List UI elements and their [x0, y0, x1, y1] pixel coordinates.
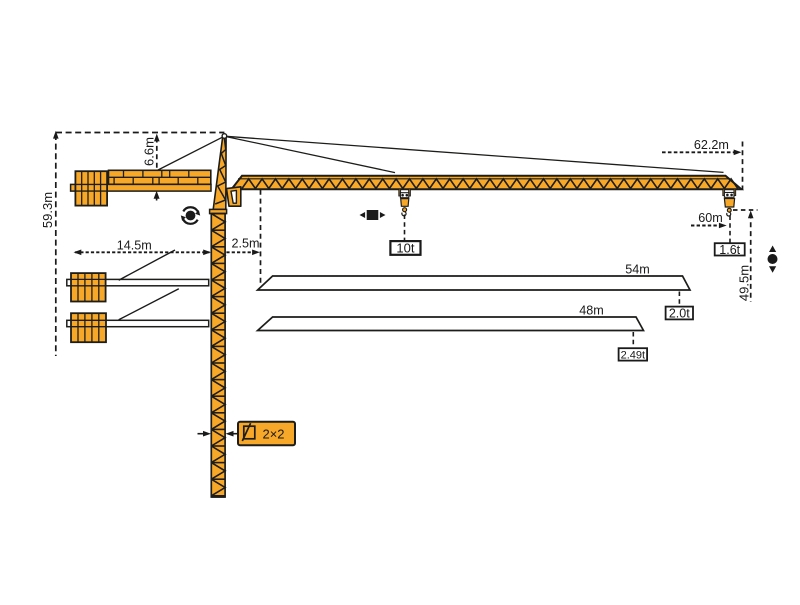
svg-text:2.5m: 2.5m: [232, 237, 260, 251]
svg-text:60m: 60m: [698, 211, 723, 225]
svg-text:1.6t: 1.6t: [719, 243, 740, 257]
svg-text:14.5m: 14.5m: [117, 239, 152, 253]
svg-text:2.49t: 2.49t: [621, 349, 645, 361]
svg-text:59.3m: 59.3m: [40, 192, 55, 228]
svg-text:2×2: 2×2: [262, 426, 284, 441]
svg-text:62.2m: 62.2m: [694, 138, 729, 152]
svg-text:10t: 10t: [396, 241, 414, 256]
svg-text:6.6m: 6.6m: [141, 137, 156, 166]
svg-text:2.0t: 2.0t: [669, 307, 690, 321]
svg-text:48m: 48m: [579, 304, 604, 318]
svg-text:54m: 54m: [625, 263, 650, 277]
svg-text:49.5m: 49.5m: [736, 265, 751, 301]
